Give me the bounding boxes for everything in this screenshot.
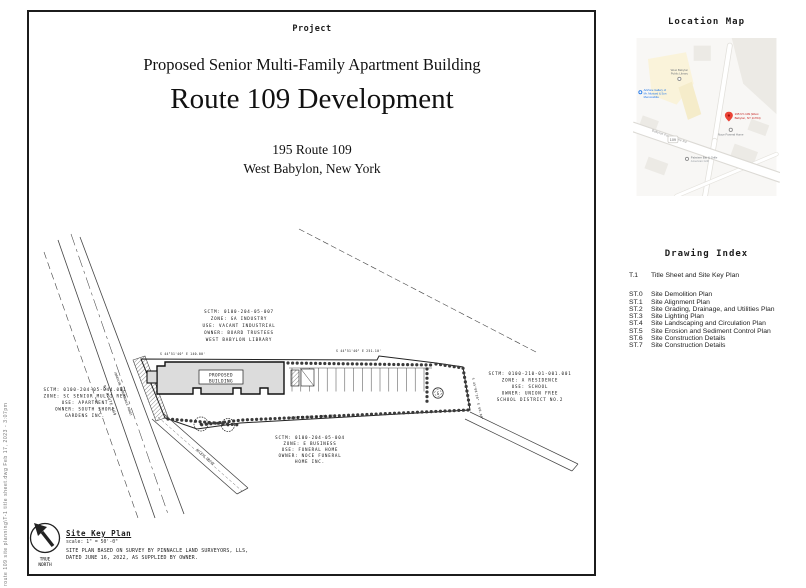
building-label: PROPOSED BUILDING [199, 370, 243, 385]
southeast-strip [465, 412, 578, 471]
svg-text:PROPOSED: PROPOSED [209, 373, 233, 379]
svg-text:ZONE: E BUSINESS: ZONE: E BUSINESS [283, 441, 336, 446]
svg-text:WEST BABYLON LIBRARY: WEST BABYLON LIBRARY [206, 337, 272, 342]
svg-text:OWNER: NOCE FUNERAL: OWNER: NOCE FUNERAL [278, 453, 341, 458]
svg-text:ZONE: SC SENIOR MULTI RES: ZONE: SC SENIOR MULTI RES [43, 394, 126, 399]
svg-text:OWNER: BOARD TRUSTEES: OWNER: BOARD TRUSTEES [204, 330, 274, 335]
survey-note-line-1: SITE PLAN BASED ON SURVEY BY PINNACLE LA… [66, 548, 248, 555]
true-north-label-2: NORTH [38, 562, 52, 568]
survey-note-line-2: DATED JUNE 16, 2022, AS SUPPLIED BY OWNE… [66, 555, 248, 562]
svg-text:USE: VACANT INDUSTRIAL: USE: VACANT INDUSTRIAL [202, 323, 275, 328]
svg-text:SCTM: 0100-204-05-044.001: SCTM: 0100-204-05-044.001 [43, 387, 126, 392]
library-parcel-boundary [299, 229, 536, 352]
site-key-plan-heading: Site Key Plan [66, 529, 131, 538]
svg-text:SCTM: 0100-210-01-001.001: SCTM: 0100-210-01-001.001 [488, 371, 571, 376]
parcel-label-funeral: SCTM: 0100-204-05-004 ZONE: E BUSINESS U… [275, 435, 345, 464]
svg-text:USE: SCHOOL: USE: SCHOOL [512, 384, 549, 389]
bearing-label: S 45°08'20" E 60.00' [471, 377, 484, 420]
svg-text:SCTM: 0100-204-05-004: SCTM: 0100-204-05-004 [275, 435, 345, 440]
survey-note: SITE PLAN BASED ON SURVEY BY PINNACLE LA… [66, 548, 248, 561]
site-key-plan-drawing: NY ROUTE 109 (BABYLON FARMINGDALE ROAD) … [0, 0, 806, 588]
bearing-label: S 44°51'40" E 140.00' [160, 352, 205, 356]
svg-text:ZONE: A RESIDENCE: ZONE: A RESIDENCE [502, 378, 558, 383]
svg-text:SCHOOL DISTRICT NO.2: SCHOOL DISTRICT NO.2 [497, 397, 563, 402]
true-north-label-1: TRUE [40, 557, 51, 563]
svg-text:HOME INC.: HOME INC. [295, 459, 325, 464]
svg-text:USE: FUNERAL HOME: USE: FUNERAL HOME [282, 447, 338, 452]
svg-text:SCTM: 0100-204-05-007: SCTM: 0100-204-05-007 [204, 309, 274, 314]
parcel-label-library: SCTM: 0100-204-05-007 ZONE: GA INDUSTRY … [202, 309, 275, 342]
svg-text:GARDENS INC.: GARDENS INC. [65, 413, 105, 418]
svg-text:BUILDING: BUILDING [209, 379, 233, 385]
bearing-label: S 44°51'40" E 251.10' [336, 349, 381, 353]
parcel-label-school: SCTM: 0100-210-01-001.001 ZONE: A RESIDE… [488, 371, 571, 402]
title-sheet-page: route 109 site planning\T-1 title sheet.… [0, 0, 806, 588]
north-arrow: TRUE NORTH [28, 518, 68, 570]
svg-text:ZONE: GA INDUSTRY: ZONE: GA INDUSTRY [211, 316, 267, 321]
scale-note: scale: 1" = 50'-0" [66, 540, 118, 545]
svg-text:USE: APARTMENT: USE: APARTMENT [62, 400, 109, 405]
g-utility-marker: G [433, 388, 443, 398]
dumpster-enclosure [291, 369, 314, 386]
svg-text:OWNER: UNION FREE: OWNER: UNION FREE [502, 391, 558, 396]
svg-text:OWNER: SOUTH SHORE: OWNER: SOUTH SHORE [55, 407, 115, 412]
building-entry-bump [147, 371, 157, 383]
